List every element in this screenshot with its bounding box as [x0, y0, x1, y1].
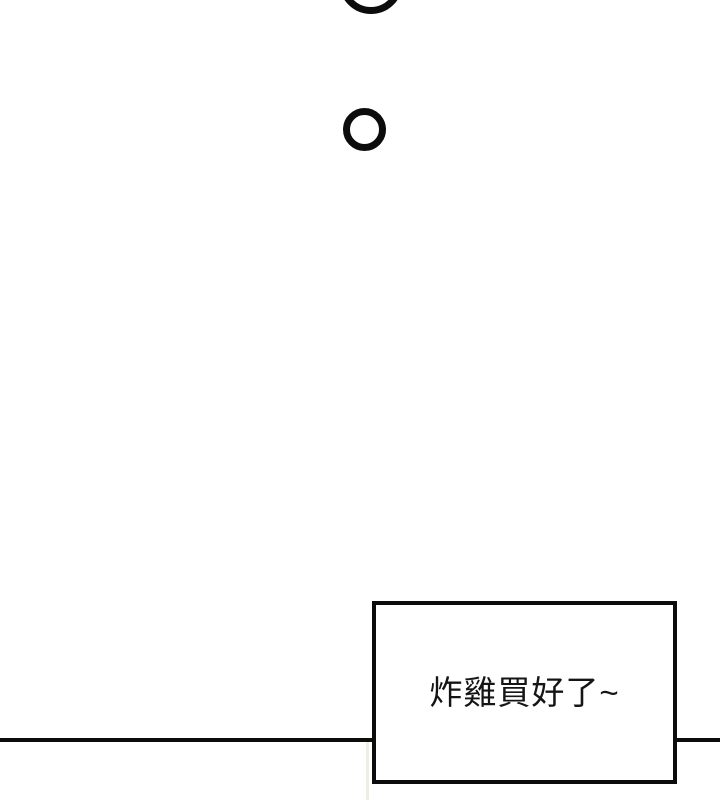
speech-text: 炸雞買好了~ [429, 676, 619, 709]
comic-page: 炸雞買好了~ [0, 0, 720, 800]
bubble-trail-circle [343, 108, 386, 151]
panel-seam-artifact [366, 742, 369, 800]
speech-box: 炸雞買好了~ [372, 601, 677, 784]
bubble-trail-circle-partial [339, 0, 403, 14]
